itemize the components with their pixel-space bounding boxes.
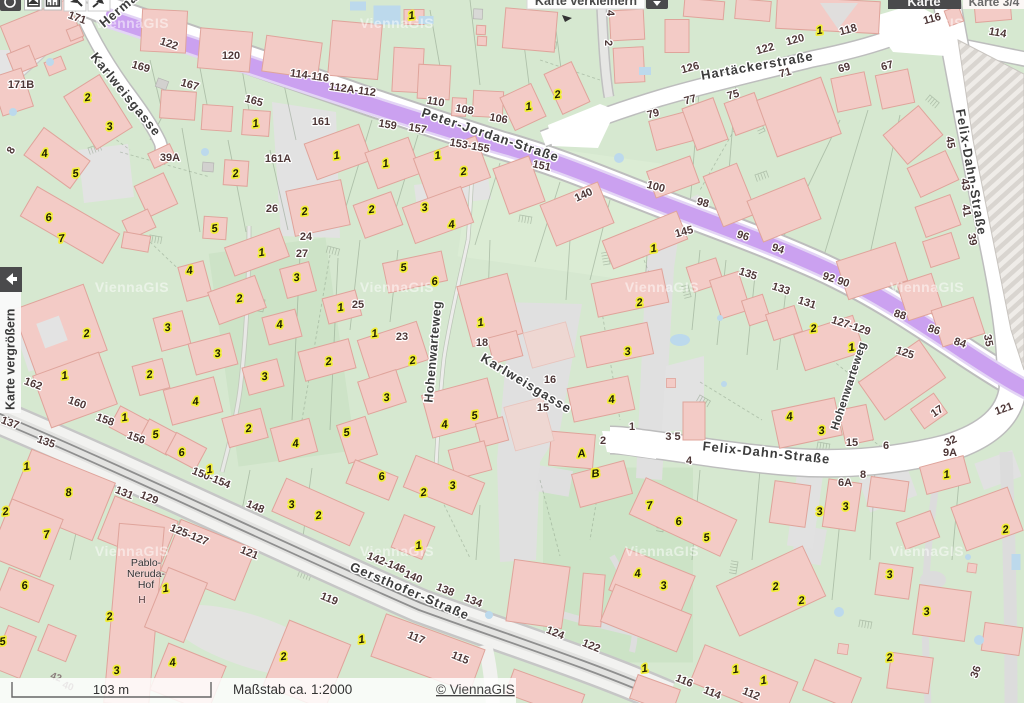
svg-text:120: 120 (222, 50, 240, 62)
svg-text:35: 35 (981, 333, 995, 347)
svg-text:15: 15 (846, 437, 858, 449)
svg-text:© ViennaGIS: © ViennaGIS (436, 682, 515, 697)
svg-text:161: 161 (312, 116, 330, 128)
svg-text:2: 2 (602, 40, 614, 46)
svg-text:Karte: Karte (907, 0, 940, 9)
svg-text:39: 39 (965, 232, 979, 246)
svg-text:4: 4 (604, 10, 616, 17)
svg-text:ViennaGIS: ViennaGIS (625, 543, 699, 559)
svg-text:Karte 3/4: Karte 3/4 (969, 0, 1020, 9)
svg-text:8: 8 (860, 469, 866, 481)
svg-text:B: B (591, 468, 601, 481)
svg-text:103 m: 103 m (93, 682, 129, 697)
svg-text:25: 25 (352, 299, 364, 311)
svg-text:6: 6 (883, 440, 889, 452)
svg-text:Hof: Hof (138, 579, 154, 591)
svg-text:27: 27 (296, 248, 308, 260)
svg-text:23: 23 (396, 331, 408, 343)
svg-text:161A: 161A (265, 153, 291, 165)
svg-text:39A: 39A (160, 152, 180, 164)
svg-text:3 5: 3 5 (665, 431, 680, 443)
svg-text:ViennaGIS: ViennaGIS (95, 279, 169, 295)
svg-text:15: 15 (537, 402, 549, 414)
svg-text:16: 16 (544, 374, 556, 386)
svg-text:Karte verkleinern: Karte verkleinern (535, 0, 637, 8)
svg-text:171B: 171B (8, 79, 34, 91)
svg-text:6A: 6A (838, 477, 852, 489)
svg-text:ViennaGIS: ViennaGIS (360, 15, 434, 31)
svg-text:43: 43 (958, 177, 972, 191)
svg-text:ViennaGIS: ViennaGIS (625, 279, 699, 295)
svg-text:24: 24 (300, 231, 313, 243)
svg-text:4: 4 (686, 455, 693, 467)
svg-text:Maßstab ca. 1:2000: Maßstab ca. 1:2000 (233, 682, 352, 697)
svg-text:H: H (138, 595, 145, 606)
svg-text:ViennaGIS: ViennaGIS (890, 543, 964, 559)
svg-text:ViennaGIS: ViennaGIS (890, 279, 964, 295)
svg-text:Karte vergrößern: Karte vergrößern (4, 309, 18, 410)
svg-text:45: 45 (943, 135, 957, 149)
svg-text:1: 1 (629, 421, 635, 433)
svg-text:9A: 9A (943, 447, 957, 459)
svg-text:ViennaGIS: ViennaGIS (360, 279, 434, 295)
svg-text:26: 26 (266, 203, 278, 215)
svg-text:2: 2 (600, 435, 606, 447)
svg-text:41: 41 (959, 203, 973, 217)
svg-text:18: 18 (476, 337, 488, 349)
svg-text:A: A (576, 448, 587, 461)
